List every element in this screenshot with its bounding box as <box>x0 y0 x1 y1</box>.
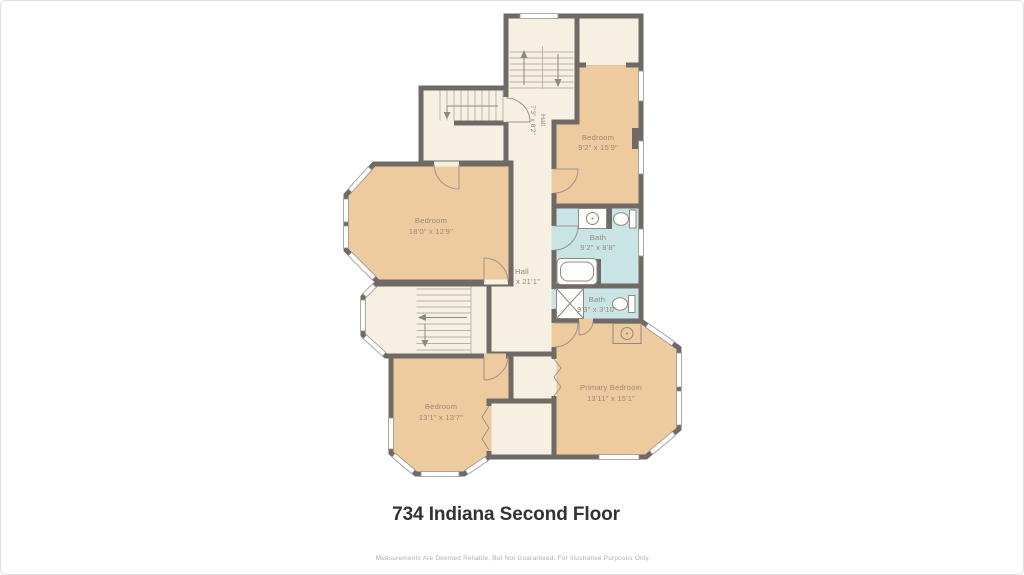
label-bath-bottom: Bath <box>589 295 605 304</box>
room-small-top-right <box>577 16 641 65</box>
room-closet-upper <box>511 354 554 401</box>
dims-bath-bottom: 9'3" x 3'10" <box>577 305 617 314</box>
label-bedroom-top-right: Bedroom <box>582 133 614 142</box>
room-closet-lower <box>489 401 554 457</box>
floor-plan: Bedroom 9'2" x 15'9" Bath 9'2" x 8'8" Ba… <box>1 1 1024 575</box>
label-bedroom-bottom-left: Bedroom <box>425 402 457 411</box>
shower-icon <box>557 289 584 319</box>
label-hall-main: Hall <box>515 267 529 276</box>
dims-bath-top: 9'2" x 8'8" <box>580 243 616 252</box>
sink-icon <box>579 209 607 229</box>
dims-hall-upper: 7'3" x 8'2" <box>529 105 536 135</box>
label-bath-top: Bath <box>590 233 606 242</box>
dims-bedroom-bottom-left: 13'1" x 13'7" <box>419 413 463 422</box>
wall-stub-chimney <box>632 128 639 149</box>
dims-primary-bedroom: 13'11" x 15'1" <box>587 394 635 403</box>
floor-plan-page: Bedroom 9'2" x 15'9" Bath 9'2" x 8'8" Ba… <box>0 0 1024 575</box>
floor-plan-title: 734 Indiana Second Floor <box>1 504 1011 526</box>
bathtub-icon <box>557 259 597 285</box>
dims-hall-main: x 21'1" <box>516 277 540 286</box>
dims-bedroom-left: 18'0" x 12'9" <box>409 227 453 236</box>
dims-bedroom-top-right: 9'2" x 15'9" <box>578 143 618 152</box>
label-hall-upper: Hall <box>539 114 546 126</box>
wall-stub-bath-vanity <box>607 206 612 229</box>
label-bedroom-left: Bedroom <box>415 216 447 225</box>
walls-and-floors <box>346 16 679 474</box>
label-primary-bedroom: Primary Bedroom <box>580 383 642 392</box>
wall-stub-stairs <box>454 121 508 126</box>
disclaimer-text: Measurements Are Deemed Reliable, But No… <box>1 555 1024 562</box>
